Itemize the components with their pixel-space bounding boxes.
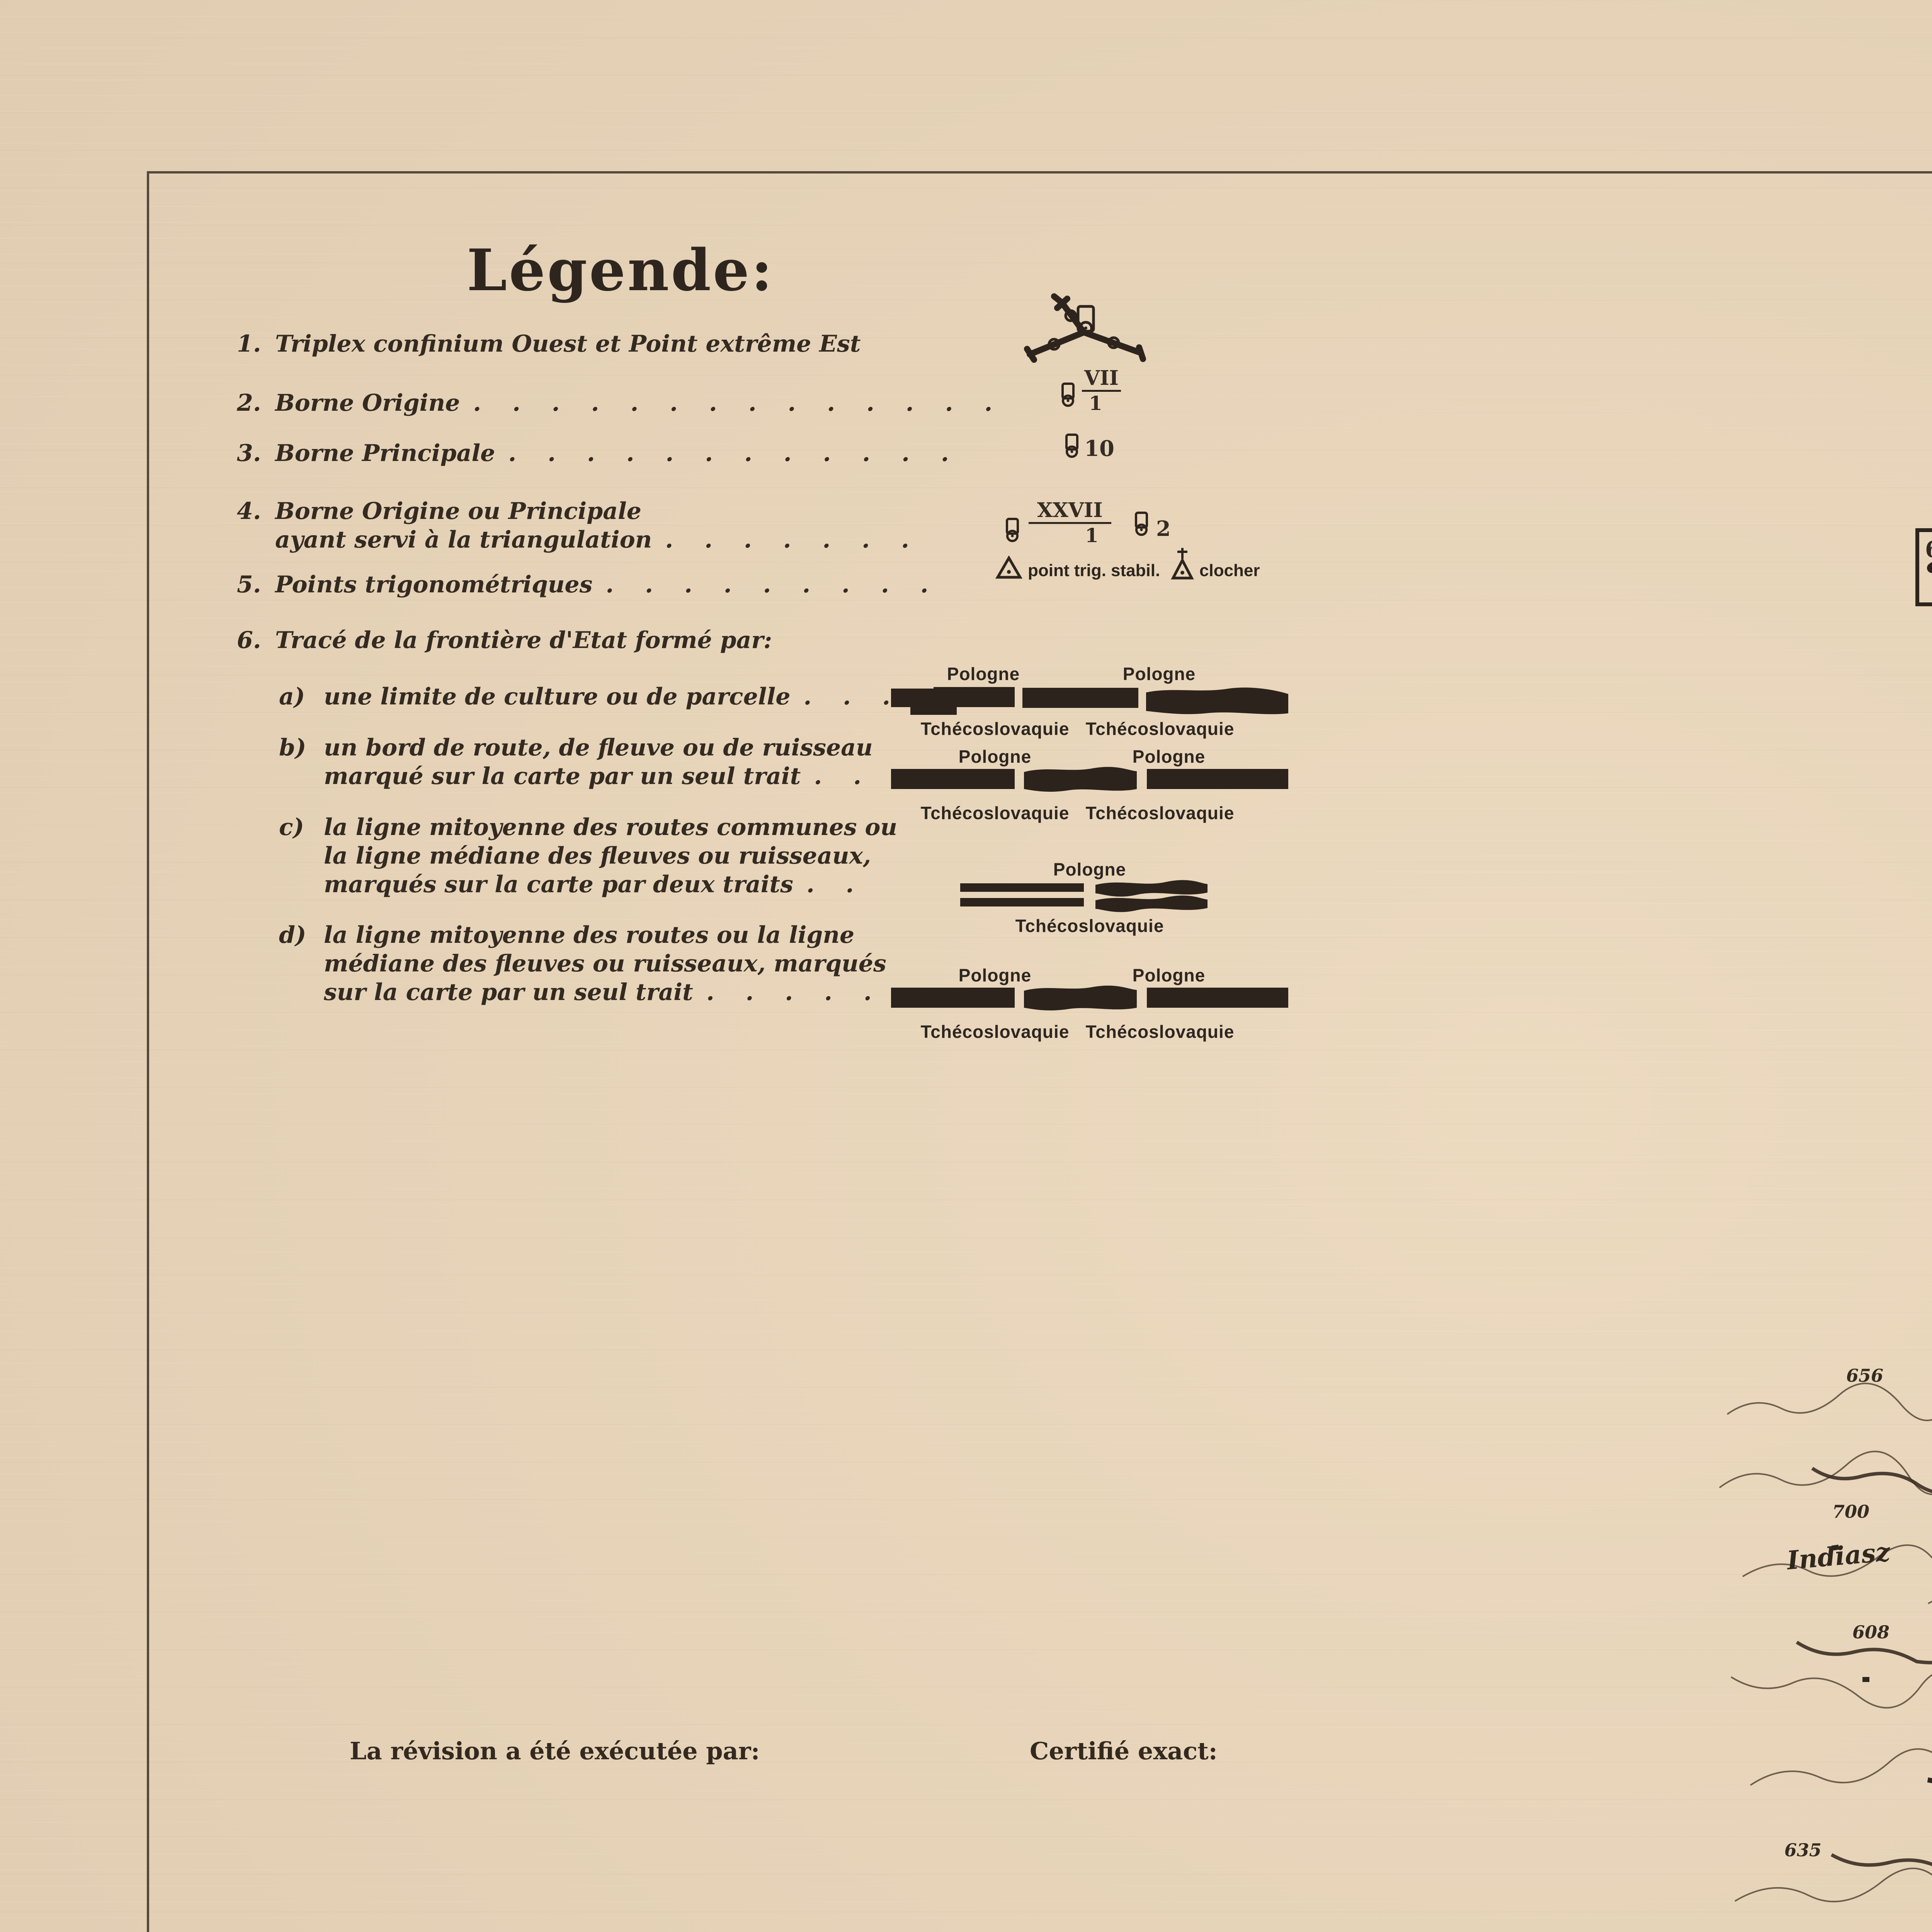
legend-sub-c-line3: marqués sur la carte par deux traits. . bbox=[324, 871, 866, 898]
contour-lines bbox=[1719, 906, 1932, 1932]
sheet-frame bbox=[147, 171, 1932, 1932]
legend-item-4-num: 4. bbox=[237, 498, 261, 525]
borne-xxvii-denominator: 1 bbox=[1085, 524, 1099, 547]
borne-xxvii-label: XXVII bbox=[1029, 498, 1111, 524]
leader-dots: . . . . . . . . . . . . bbox=[508, 440, 960, 467]
leader-dots: . . . . . . . . . . . . . . bbox=[473, 389, 1004, 417]
borne-10-label: 10 bbox=[1084, 436, 1114, 461]
topographic-map: Dunajec Sołtysowa Skałka 585 Sromowce Wy… bbox=[1696, 811, 1932, 1932]
sample-b-country-bottom-2: Tchécoslovaquie bbox=[1086, 803, 1235, 823]
legend-sub-b-letter: b) bbox=[279, 734, 306, 761]
sample-c-country-top: Pologne bbox=[1053, 859, 1126, 879]
clocher-icon bbox=[1171, 547, 1194, 580]
index-map: Tableau d' assemblage 37°30' 38° 49°30' … bbox=[1874, 301, 1932, 850]
legend-item-6: Tracé de la frontière d'Etat formé par: bbox=[275, 627, 772, 654]
border-bar bbox=[960, 898, 1084, 906]
triple-junction-symbol-icon bbox=[1020, 292, 1151, 373]
border-style-samples: Pologne Pologne Tchécoslovaquie Tchécosl… bbox=[885, 653, 1294, 1047]
legend-item-2: Borne Origine. . . . . . . . . . . . . . bbox=[275, 389, 1004, 417]
border-bar bbox=[960, 883, 1084, 892]
leader-dots: . . . . . . . . . bbox=[605, 571, 940, 598]
sample-b-country-top-2: Pologne bbox=[1133, 747, 1205, 767]
sample-d-country-top-1: Pologne bbox=[959, 965, 1031, 985]
leader-dots: . . bbox=[806, 871, 866, 898]
sample-c-country-bottom: Tchécoslovaquie bbox=[1015, 916, 1164, 936]
place-label: Indiasz bbox=[1785, 1536, 1892, 1575]
legend-sub-d-line2: médiane des fleuves ou ruisseaux, marqué… bbox=[324, 950, 886, 977]
border-bar bbox=[891, 769, 1015, 789]
sample-a-country-top-2: Pologne bbox=[1123, 664, 1196, 684]
border-bar bbox=[891, 988, 1015, 1008]
leader-dots: . . . . . . . bbox=[665, 526, 921, 553]
legend-sub-a-letter: a) bbox=[279, 683, 305, 710]
legend-sub-b-line1: un bord de route, de fleuve ou de ruisse… bbox=[324, 734, 873, 761]
border-bar bbox=[1024, 986, 1137, 1010]
border-bar bbox=[1147, 988, 1288, 1008]
revision-executed-label: La révision a été exécutée par: bbox=[350, 1737, 760, 1765]
sample-b-country-bottom-1: Tchécoslovaquie bbox=[921, 803, 1070, 823]
border-bar bbox=[1147, 769, 1288, 789]
borne-icon bbox=[1063, 433, 1080, 459]
clocher-label: clocher bbox=[1199, 561, 1260, 580]
borne-2-label: 2 bbox=[1156, 516, 1171, 541]
sample-a-country-top-1: Pologne bbox=[947, 664, 1020, 684]
border-bar bbox=[891, 687, 1015, 715]
legend-sub-a: une limite de culture ou de parcelle. . … bbox=[324, 683, 941, 710]
legend-item-2-num: 2. bbox=[237, 389, 261, 417]
certified-exact-label: Certifié exact: bbox=[1030, 1737, 1218, 1765]
sample-a-country-bottom-1: Tchécoslovaquie bbox=[921, 719, 1070, 739]
trig-point-label: point trig. stabil. bbox=[1028, 561, 1160, 580]
border-bar bbox=[1022, 688, 1138, 708]
legend-sub-c-line2: la ligne médiane des fleuves ou ruisseau… bbox=[324, 842, 871, 869]
borne-icon bbox=[1133, 511, 1150, 537]
legend-item-5: Points trigonométriques. . . . . . . . . bbox=[275, 571, 940, 598]
legend-sub-c-letter: c) bbox=[279, 814, 304, 841]
legend-sub-d-line1: la ligne mitoyenne des routes ou la lign… bbox=[324, 922, 854, 949]
spot-height: 656 bbox=[1846, 1365, 1883, 1386]
sample-a-country-bottom-2: Tchécoslovaquie bbox=[1086, 719, 1235, 739]
border-bar bbox=[1095, 896, 1207, 912]
legend-sub-c-line1: la ligne mitoyenne des routes communes o… bbox=[324, 814, 897, 841]
borne-icon bbox=[1060, 382, 1077, 408]
legend-item-4-line1: Borne Origine ou Principale bbox=[275, 498, 641, 525]
sample-d-country-top-2: Pologne bbox=[1133, 965, 1205, 985]
legend-item-6-num: 6. bbox=[237, 627, 261, 654]
sample-b-country-top-1: Pologne bbox=[959, 747, 1031, 767]
tile-63: 63 bbox=[1925, 536, 1932, 563]
legend-sub-b-line2: marqué sur la carte par un seul trait. . bbox=[324, 763, 873, 790]
legend-item-5-num: 5. bbox=[237, 571, 261, 598]
sample-d-country-bottom-1: Tchécoslovaquie bbox=[921, 1022, 1070, 1042]
spot-height: 635 bbox=[1784, 1840, 1821, 1861]
legend-item-1-num: 1. bbox=[237, 330, 261, 357]
legend-sub-d-letter: d) bbox=[279, 922, 306, 949]
legend-item-3-num: 3. bbox=[237, 440, 261, 467]
borne-vii-label: VII bbox=[1082, 366, 1121, 392]
leader-dots: . . bbox=[814, 763, 873, 790]
buildings bbox=[1832, 1243, 1932, 1932]
border-bar bbox=[1095, 880, 1207, 897]
border-bar bbox=[1146, 687, 1288, 714]
borne-vii-denominator: 1 bbox=[1089, 392, 1102, 415]
legend-sub-d-line3: sur la carte par un seul trait. . . . . … bbox=[324, 979, 922, 1006]
borne-icon bbox=[1004, 517, 1021, 543]
legend-title: Légende: bbox=[467, 236, 774, 304]
trig-point-icon bbox=[995, 556, 1022, 580]
sample-d-country-bottom-2: Tchécoslovaquie bbox=[1086, 1022, 1235, 1042]
spot-height: 700 bbox=[1832, 1501, 1869, 1522]
legend-item-1: Triplex confinium Ouest et Point extrême… bbox=[275, 330, 861, 357]
border-bar bbox=[1024, 767, 1137, 792]
legend-item-3: Borne Principale. . . . . . . . . . . . bbox=[275, 440, 961, 467]
legend-item-4-line2: ayant servi à la triangulation. . . . . … bbox=[275, 526, 921, 553]
spot-height: 608 bbox=[1852, 1622, 1889, 1643]
